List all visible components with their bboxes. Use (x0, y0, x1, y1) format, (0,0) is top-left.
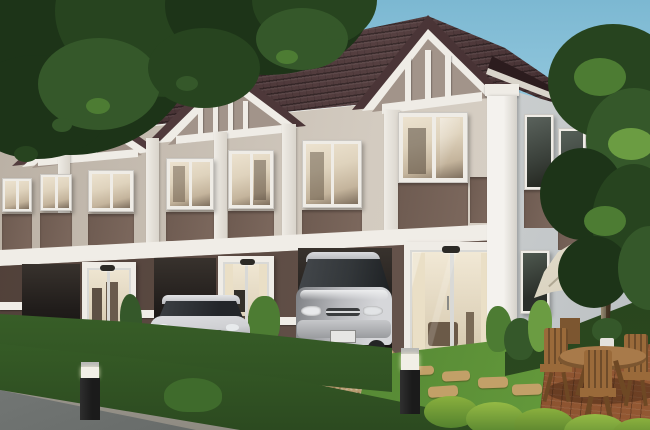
car-2-chrome-bar (326, 311, 360, 313)
spandrel-panel (88, 214, 134, 245)
bollard-light-lens (81, 367, 99, 378)
upper-window (40, 174, 72, 211)
leaf-cluster (86, 98, 110, 114)
pilaster (214, 132, 227, 250)
bollard-light-body (400, 370, 420, 414)
leaf-cluster (176, 76, 198, 91)
stepping-stone (478, 376, 508, 388)
car-2-license-plate (330, 330, 356, 343)
tree-foliage-highlight (574, 58, 626, 96)
upper-window (88, 170, 134, 212)
spandrel-panel (40, 213, 72, 248)
scene-townhouse-exterior (0, 0, 650, 430)
car-2-headlight (363, 306, 383, 316)
end-unit-window (398, 112, 468, 183)
door-plaque (442, 246, 460, 253)
tree-canopy-left (38, 38, 160, 130)
window-mullion (110, 174, 113, 208)
spandrel-panel (2, 214, 32, 250)
window-interior-shade (254, 160, 266, 200)
tree-foliage-highlight (584, 206, 626, 236)
window-mullion (189, 162, 192, 206)
leaf-cluster (276, 50, 298, 64)
bollard-light-body (80, 378, 100, 420)
upper-window (2, 178, 32, 212)
gable-3-batten (445, 55, 451, 99)
shrub (164, 378, 222, 412)
car-2-headlight (301, 306, 321, 316)
stepping-stone (442, 370, 470, 381)
window-interior-shade (408, 128, 426, 174)
upper-window (228, 150, 274, 209)
pilaster (282, 124, 296, 246)
window-interior-shade (310, 152, 324, 200)
leaf-cluster (14, 146, 38, 162)
gable-3-batten (425, 50, 431, 104)
leaf-cluster (52, 118, 72, 132)
leaf-cluster (326, 26, 346, 40)
upper-window (302, 140, 362, 208)
bollard-light-lens (401, 354, 419, 370)
gable-2-batten (243, 101, 248, 133)
door-plaque (240, 259, 255, 265)
window-mullion (250, 154, 253, 205)
window-mullion (16, 181, 19, 209)
tree-canopy-left (148, 28, 260, 108)
door-plaque (100, 265, 115, 271)
chair-seat (580, 388, 616, 397)
upper-window (166, 158, 214, 210)
window-interior-shade (173, 166, 185, 202)
corner-dark-panel (470, 177, 488, 223)
corner-pilaster-cap (485, 84, 519, 96)
chair-seat (620, 372, 650, 380)
window-mullion (55, 177, 58, 208)
window-mullion (432, 117, 436, 178)
car-2-hood-highlight (300, 290, 388, 300)
spandrel-panel (398, 183, 468, 229)
stepping-stone (512, 383, 542, 395)
window-mullion (331, 144, 334, 204)
pilaster (146, 138, 159, 254)
spandrel-panel (228, 211, 274, 238)
spandrel-panel (166, 212, 214, 241)
gable-3-batten (405, 58, 411, 106)
chair (584, 350, 612, 390)
tree-foliage-highlight (608, 128, 650, 160)
door-interior-furniture (92, 288, 102, 322)
window-reflection (440, 118, 460, 176)
car-1-headlight (226, 324, 239, 331)
